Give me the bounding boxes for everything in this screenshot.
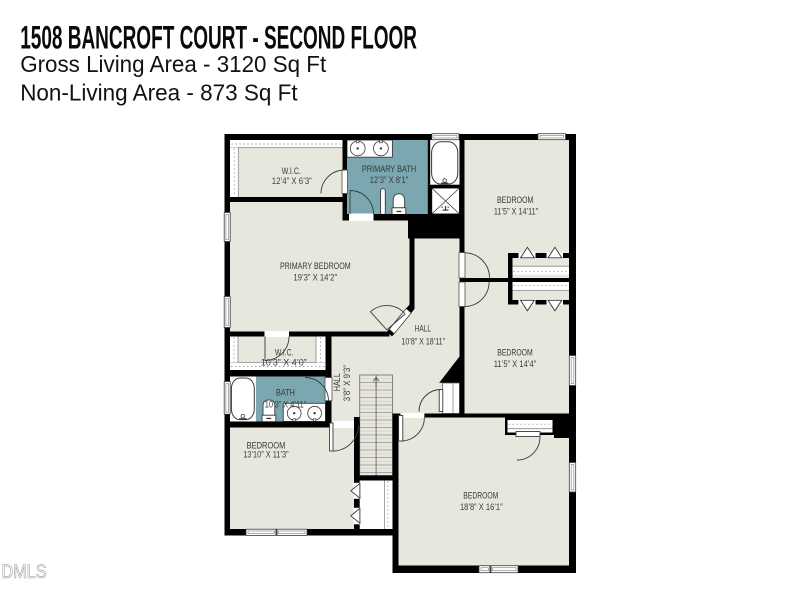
svg-text:BATH: BATH [276, 388, 295, 398]
svg-text:11’5” X 14’11”: 11’5” X 14’11” [494, 207, 538, 217]
svg-text:BEDROOM: BEDROOM [463, 491, 498, 501]
svg-text:BEDROOM: BEDROOM [497, 195, 534, 205]
svg-text:19’3” X 14’2”: 19’3” X 14’2” [293, 272, 337, 282]
svg-text:BEDROOM: BEDROOM [497, 347, 532, 357]
svg-text:HALL: HALL [332, 373, 342, 391]
svg-text:11’5” X 14’4”: 11’5” X 14’4” [494, 359, 537, 369]
svg-text:PRIMARY BATH: PRIMARY BATH [362, 164, 416, 174]
svg-text:10’3” X 4’0”: 10’3” X 4’0” [261, 357, 307, 367]
svg-text:10’8” X 18’11”: 10’8” X 18’11” [401, 336, 445, 346]
svg-text:Non-Living Area - 873 Sq Ft: Non-Living Area - 873 Sq Ft [20, 80, 298, 106]
svg-text:PRIMARY BEDROOM: PRIMARY BEDROOM [280, 261, 351, 271]
svg-text:12’3” X 8’1”: 12’3” X 8’1” [370, 175, 409, 185]
svg-text:10’3” X 4’11”: 10’3” X 4’11” [265, 399, 307, 409]
svg-text:3’8” X 9’3”: 3’8” X 9’3” [342, 365, 352, 401]
svg-text:18’8” X 16’1”: 18’8” X 16’1” [460, 502, 503, 512]
svg-text:W.I.C.: W.I.C. [282, 166, 301, 176]
svg-text:12’4” X 6’3”: 12’4” X 6’3” [272, 176, 312, 186]
svg-text:1508 BANCROFT COURT - SECOND F: 1508 BANCROFT COURT - SECOND FLOOR [20, 20, 417, 56]
svg-text:13’10” X 11’3”: 13’10” X 11’3” [243, 450, 288, 460]
svg-text:W.I.C.: W.I.C. [275, 348, 293, 358]
svg-text:DMLS: DMLS [2, 562, 47, 583]
svg-text:Gross Living Area - 3120 Sq Ft: Gross Living Area - 3120 Sq Ft [20, 51, 326, 77]
svg-text:HALL: HALL [415, 323, 431, 333]
